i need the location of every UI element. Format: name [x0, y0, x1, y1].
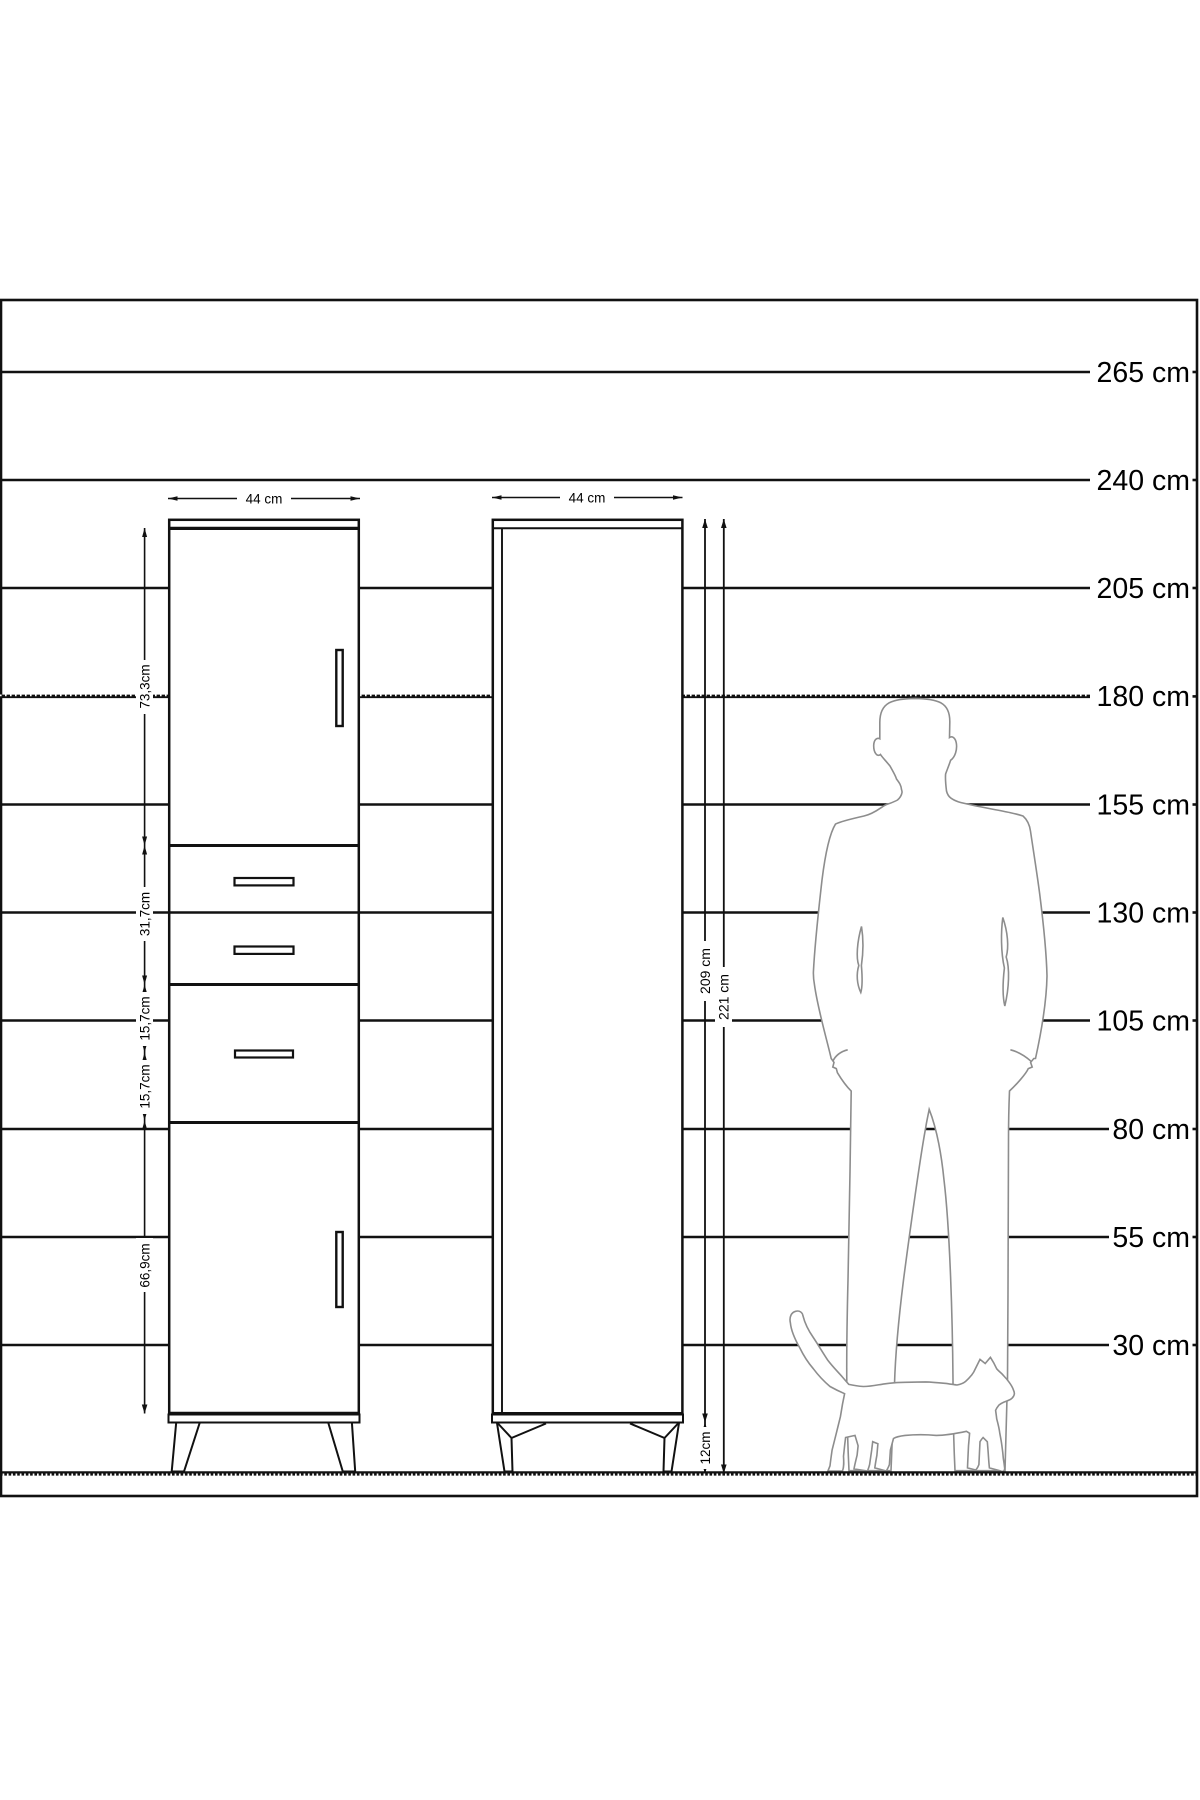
- svg-text:73,3cm: 73,3cm: [137, 664, 152, 708]
- svg-text:55 cm: 55 cm: [1112, 1222, 1190, 1254]
- svg-text:221 cm: 221 cm: [716, 974, 732, 1020]
- svg-text:155 cm: 155 cm: [1097, 790, 1190, 822]
- svg-text:31,7cm: 31,7cm: [137, 892, 152, 936]
- svg-text:12cm: 12cm: [698, 1431, 713, 1464]
- svg-text:265 cm: 265 cm: [1097, 357, 1190, 389]
- svg-text:105 cm: 105 cm: [1097, 1006, 1190, 1038]
- svg-text:180 cm: 180 cm: [1097, 681, 1190, 713]
- svg-text:240 cm: 240 cm: [1097, 465, 1190, 497]
- svg-text:15,7cm: 15,7cm: [137, 1064, 152, 1108]
- svg-text:66,9cm: 66,9cm: [137, 1243, 152, 1287]
- svg-text:80 cm: 80 cm: [1112, 1114, 1190, 1146]
- svg-text:30 cm: 30 cm: [1112, 1330, 1190, 1362]
- svg-text:209 cm: 209 cm: [697, 948, 713, 994]
- svg-text:44 cm: 44 cm: [569, 491, 606, 506]
- svg-text:130 cm: 130 cm: [1097, 898, 1190, 930]
- svg-text:44 cm: 44 cm: [246, 492, 283, 507]
- svg-text:15,7cm: 15,7cm: [137, 996, 152, 1040]
- svg-text:205 cm: 205 cm: [1097, 573, 1190, 605]
